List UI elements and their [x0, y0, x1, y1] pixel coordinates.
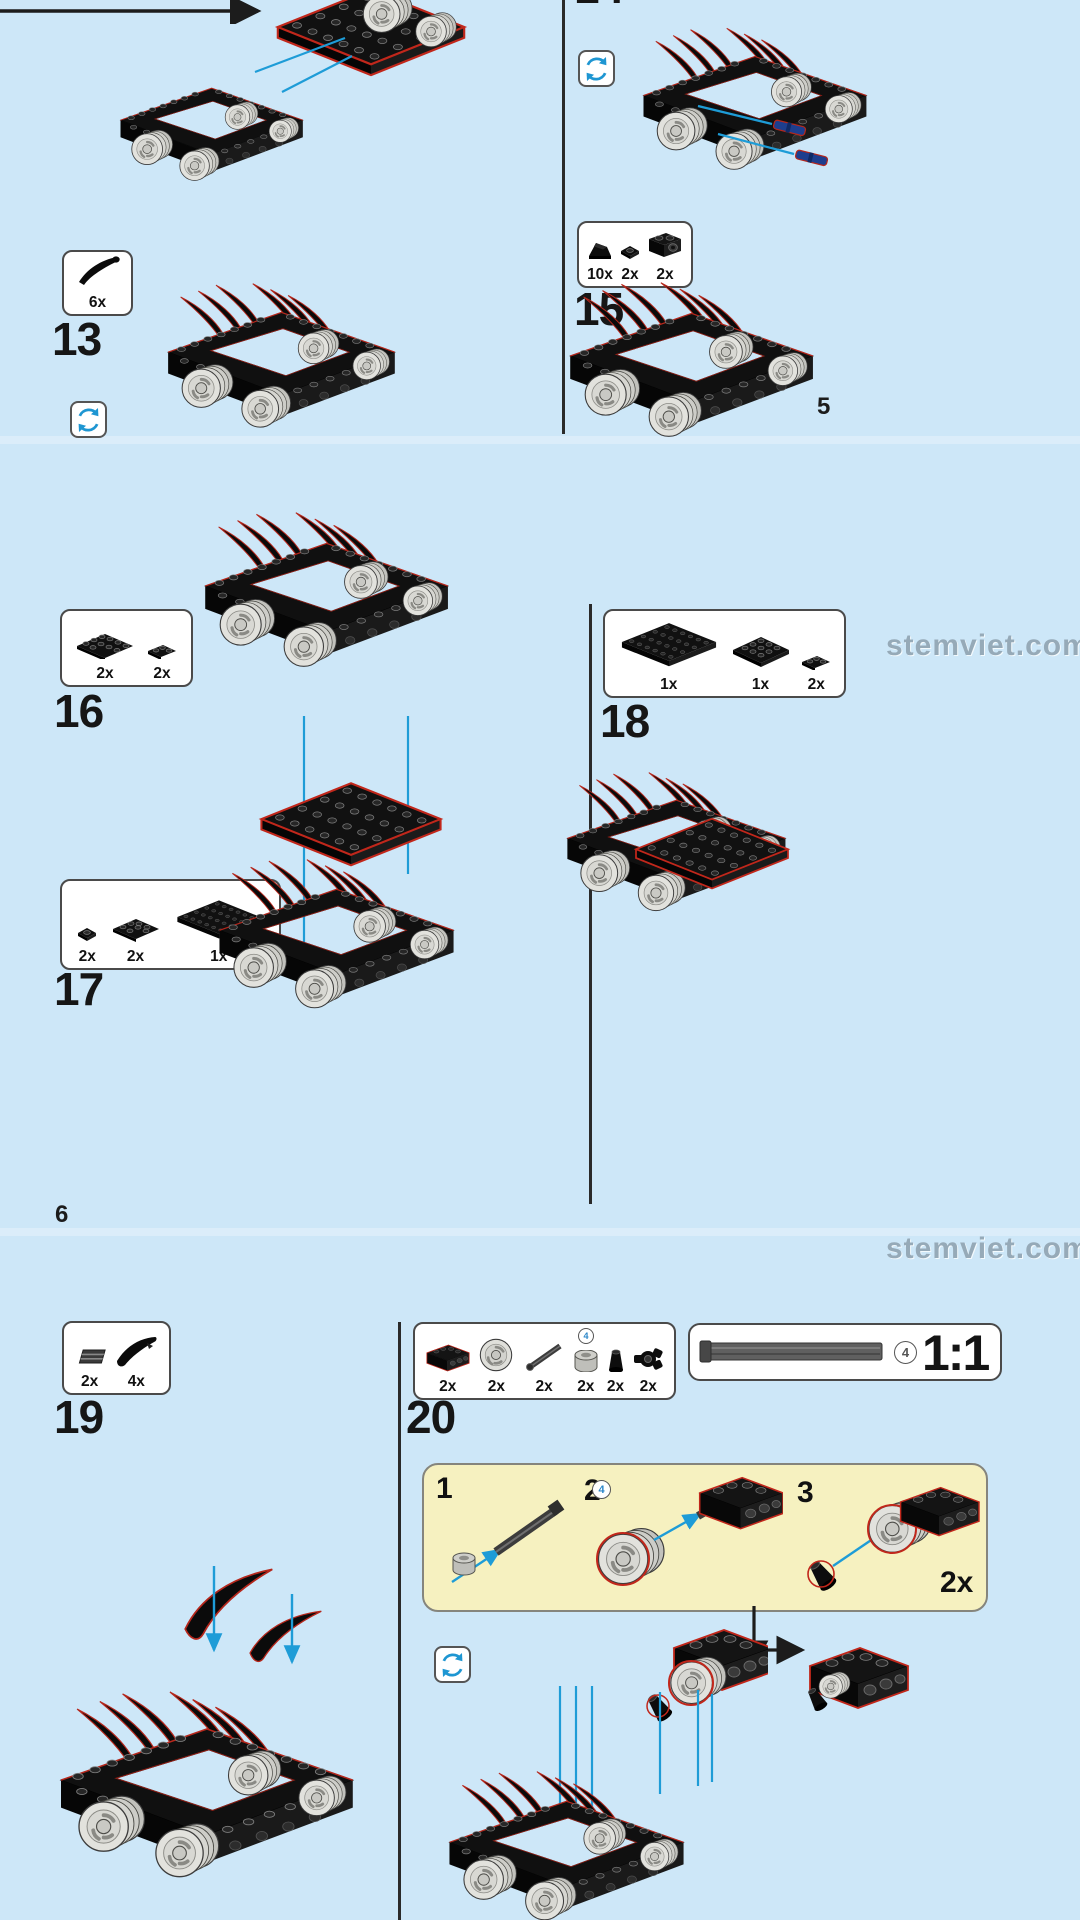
instruction-sheet: 6x 13 14 10x	[0, 0, 1080, 1920]
part-item: 2x	[607, 1348, 625, 1395]
step-13-label: 13	[52, 316, 101, 362]
plate-2x6-icon	[75, 629, 135, 664]
assembly-step16-illustration	[175, 482, 475, 679]
page-number-6: 6	[55, 1203, 68, 1227]
step-16-label: 16	[54, 688, 103, 734]
substep-2-illustration	[578, 1472, 783, 1604]
part-count: 4x	[128, 1374, 145, 1390]
scale-label: 1:1	[922, 1328, 988, 1378]
part-item: 2x	[75, 629, 135, 682]
part-count: 2x	[79, 949, 96, 965]
cone-icon	[607, 1348, 625, 1377]
part-item: 2x	[146, 641, 178, 682]
watermark: stemviet.com	[886, 629, 1080, 663]
axle-actual-size	[698, 1336, 890, 1368]
part-count: 2x	[96, 666, 113, 682]
page-number-5: 5	[817, 395, 830, 419]
part-item: 1x	[731, 628, 791, 693]
part-count: 2x	[488, 1379, 505, 1395]
plate-4x4-icon	[731, 628, 791, 675]
substep-1-illustration	[430, 1472, 580, 1604]
part-count: 2x	[153, 666, 170, 682]
part-count: 2x	[607, 1379, 624, 1395]
parts-box-step20: 2x 2x 2x 2x 2x	[413, 1322, 676, 1400]
part-count: 1x	[752, 677, 769, 693]
part-item: 2x	[111, 914, 161, 965]
bush-icon	[574, 1350, 598, 1377]
parts-box-step13: 6x	[62, 250, 133, 316]
step-17-label: 17	[54, 966, 103, 1012]
plate-1x3-icon	[800, 652, 832, 675]
blue-pin-icon	[773, 119, 828, 166]
assembly-step15-illustration	[540, 252, 840, 449]
part-count: 1x	[660, 677, 677, 693]
step-arrow	[0, 0, 300, 24]
plate-1x1-icon	[76, 924, 98, 947]
curved-slope-icon	[113, 1335, 159, 1372]
pin-insert-guides	[688, 86, 888, 196]
parts-box-step19: 2x 4x	[62, 1321, 171, 1395]
assembly-step17-illustration	[190, 830, 480, 1020]
part-item: 2x	[574, 1350, 598, 1395]
step-19-label: 19	[54, 1394, 103, 1440]
attached-plate-step18	[628, 806, 796, 894]
part-item: 2x	[76, 924, 98, 965]
axle-length-badge: 4	[894, 1341, 917, 1364]
part-item: 4x	[113, 1335, 159, 1390]
part-count: 2x	[81, 1374, 98, 1390]
part-item: 6x	[75, 254, 121, 311]
part-count: 2x	[640, 1379, 657, 1395]
rotate-icon	[434, 1646, 471, 1683]
part-count: 2x	[577, 1379, 594, 1395]
axle-length-badge: 4	[578, 1328, 594, 1344]
plate-1x3-icon	[146, 641, 178, 664]
part-item: 2x	[74, 1347, 106, 1390]
rotate-icon	[578, 50, 615, 87]
part-item: 2x	[426, 1344, 470, 1395]
part-item: 2x	[523, 1340, 565, 1395]
rotate-icon	[70, 401, 107, 438]
subassembly-result-2	[800, 1630, 910, 1715]
grille-tile-icon	[74, 1347, 106, 1372]
horn-claw-icon	[75, 254, 121, 293]
part-item: 1x	[617, 615, 721, 693]
plate-2x4-icon	[111, 914, 161, 947]
part-count: 6x	[89, 295, 106, 311]
pulley-wheel-icon	[478, 1338, 514, 1377]
assembly-step13-illustration	[140, 255, 420, 439]
part-item: 2x	[633, 1346, 663, 1395]
part-item: 2x	[800, 652, 832, 693]
step-18-label: 18	[600, 698, 649, 744]
pin-connector-icon	[633, 1346, 663, 1377]
part-item: 2x	[478, 1338, 514, 1395]
assembly-step20-illustration	[420, 1742, 710, 1920]
part-count: 2x	[535, 1379, 552, 1395]
parts-box-step18: 1x 1x 2x	[603, 609, 846, 698]
part-count: 2x	[808, 677, 825, 693]
step-20-label: 20	[406, 1394, 455, 1440]
substep-3-illustration	[795, 1472, 985, 1604]
plate-6x4-icon	[617, 615, 721, 675]
watermark: stemviet.com	[886, 1232, 1080, 1266]
column-divider	[398, 1322, 401, 1920]
attach-guide-lines	[240, 26, 380, 98]
part-count: 2x	[127, 949, 144, 965]
assembly-step19-illustration	[25, 1655, 385, 1892]
axle-icon	[523, 1340, 565, 1377]
parts-box-step16: 2x 2x	[60, 609, 193, 687]
technic-brick-1x4-icon	[426, 1344, 470, 1377]
